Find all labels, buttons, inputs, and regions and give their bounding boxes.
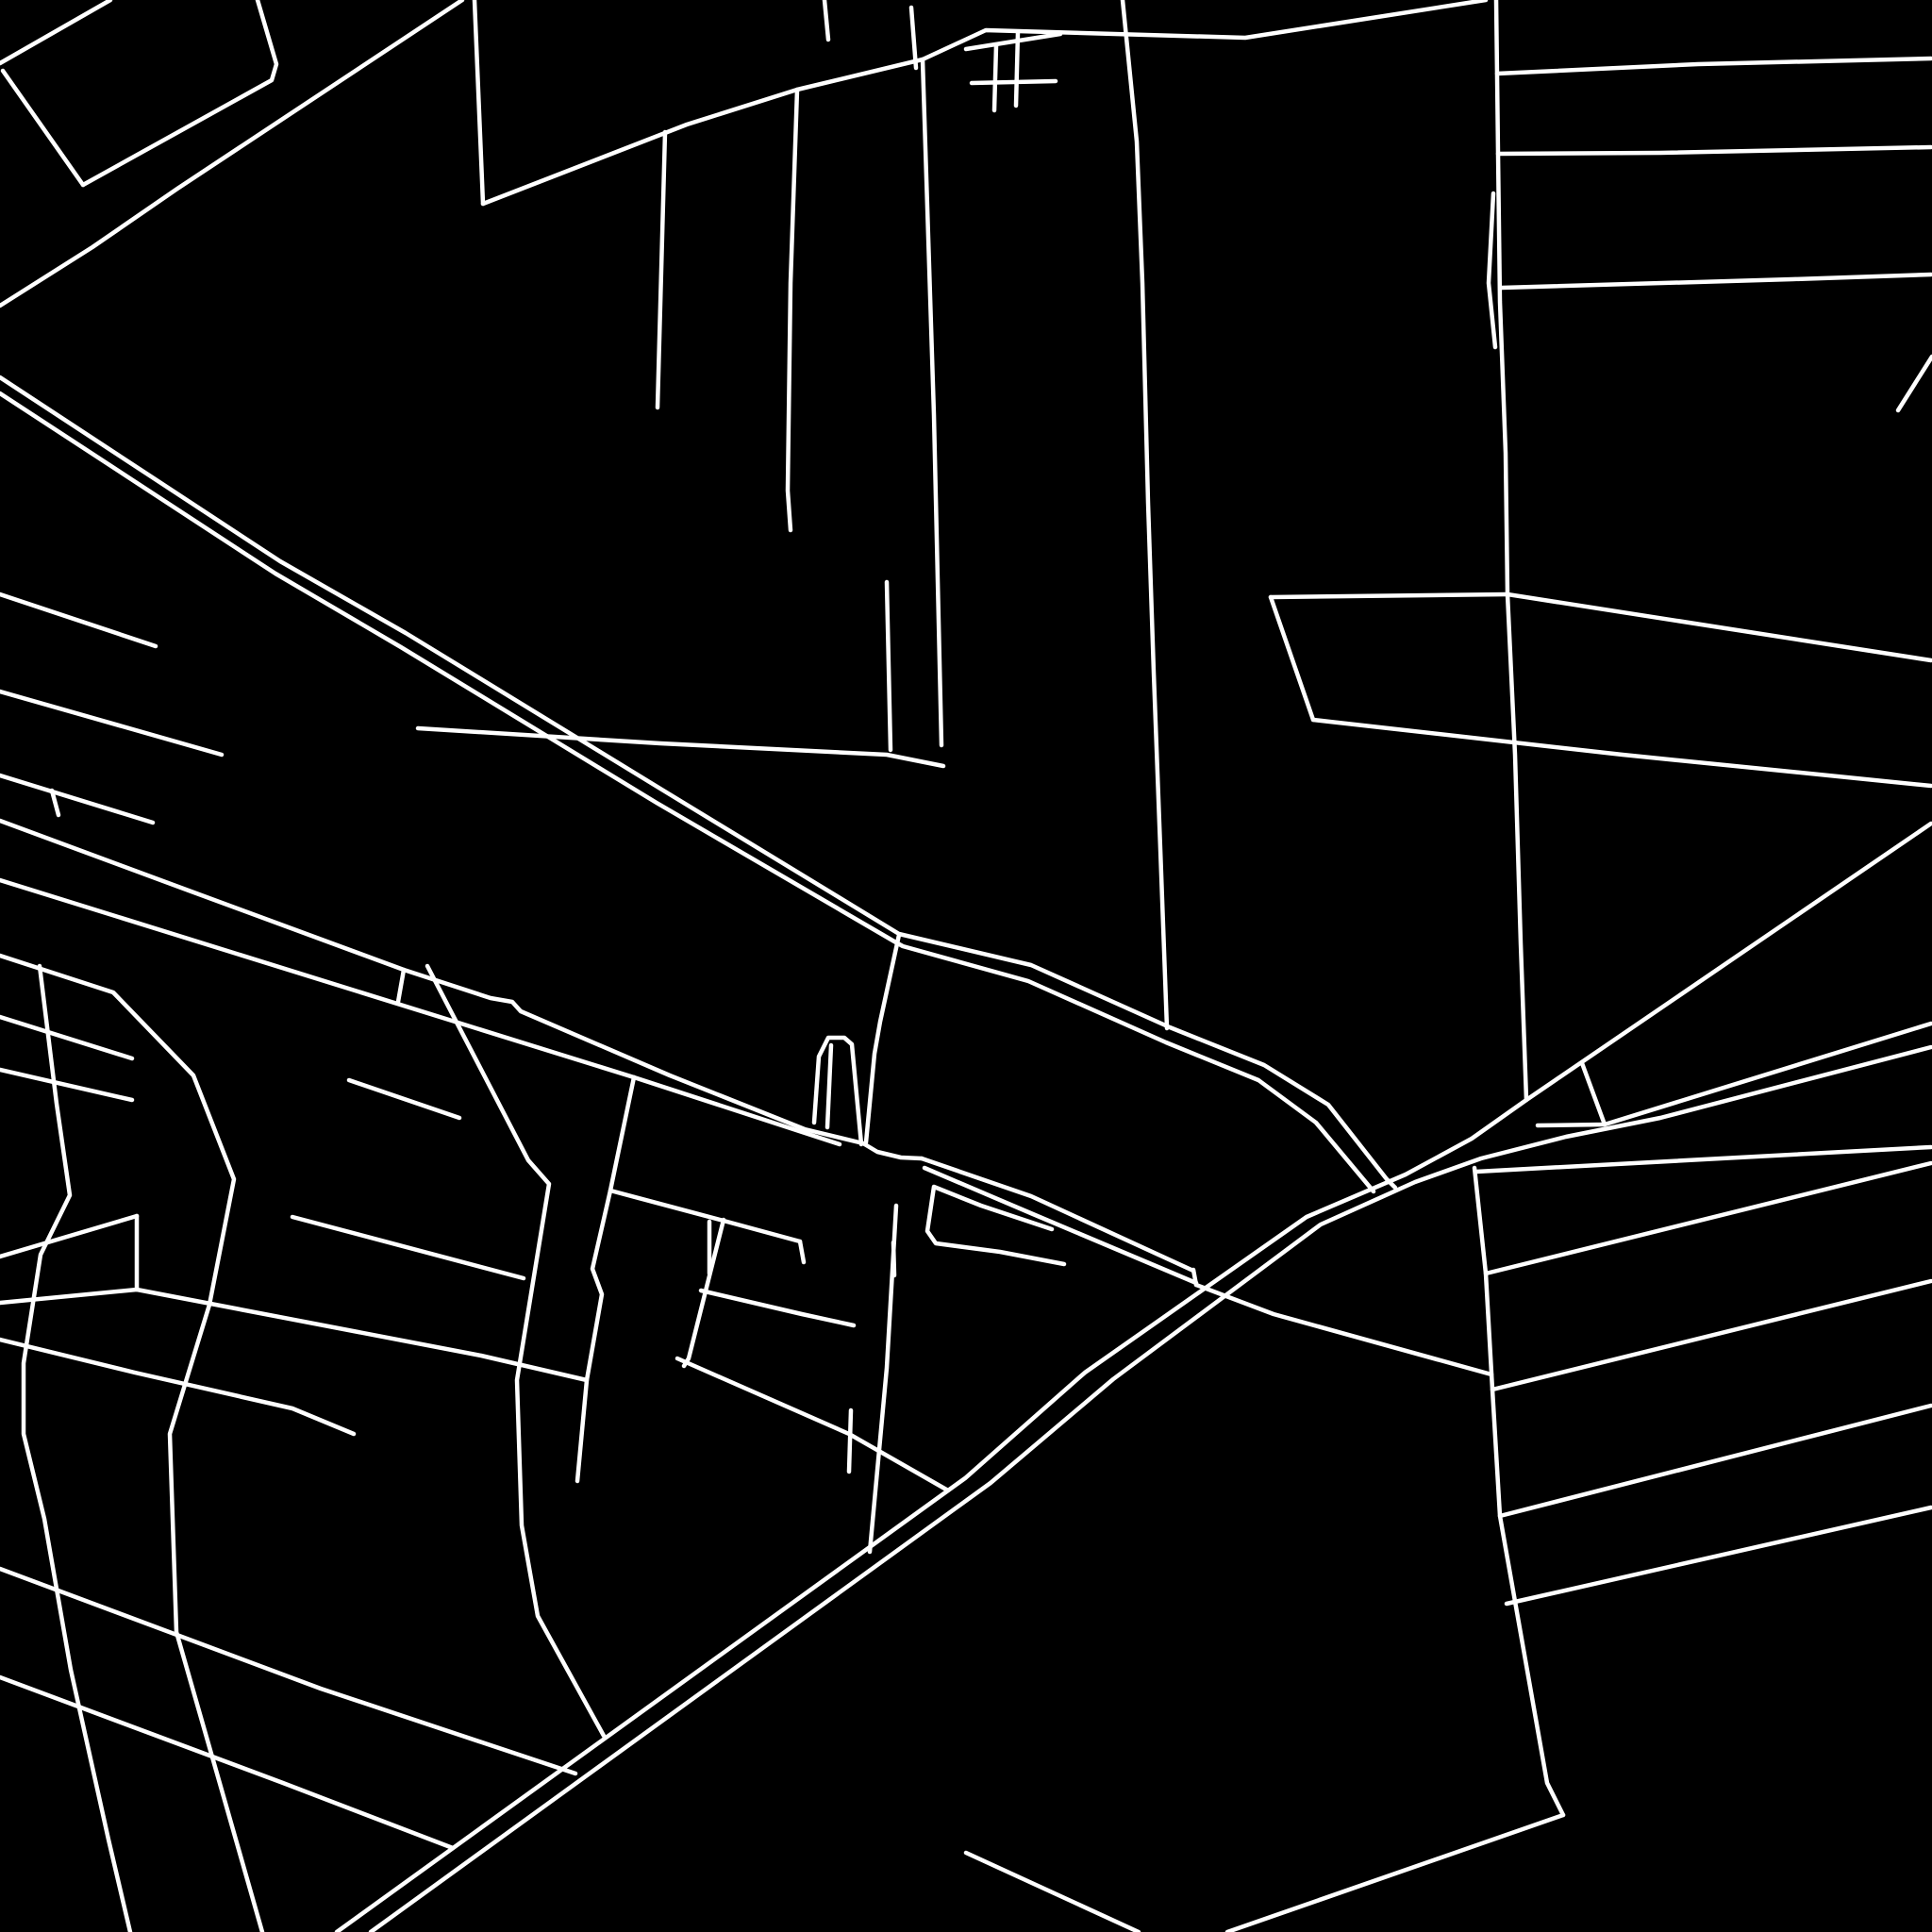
map-canvas[interactable] [0, 0, 1932, 1932]
road-line-street-jog [1193, 1270, 1196, 1285]
map-background [0, 0, 1932, 1932]
road-line-trapezoid-top [1271, 594, 1507, 597]
road-line-village-v3b [849, 1410, 851, 1472]
road-network-svg [0, 0, 1932, 1932]
road-line-cluster-h2 [972, 81, 1056, 83]
road-line-cluster-v1 [994, 45, 996, 110]
road-line-cluster-v2 [1016, 32, 1018, 106]
